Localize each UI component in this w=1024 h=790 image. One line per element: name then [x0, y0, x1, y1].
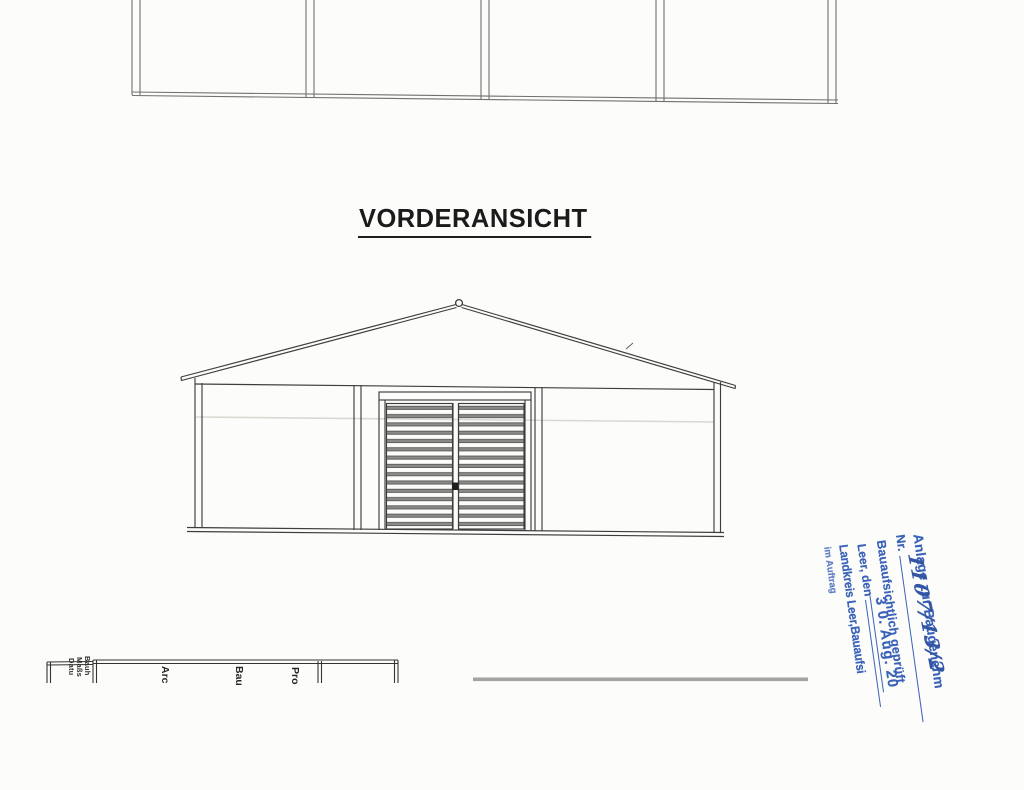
stamp-place-label: Leer, den — [854, 543, 875, 597]
door-group — [379, 392, 531, 530]
titleblock-field-datum: Datu — [67, 658, 76, 675]
roof-tick-mark — [626, 343, 633, 349]
door-handle — [452, 483, 459, 491]
wall-outline — [187, 378, 724, 537]
titleblock-col-architekt: Arc — [159, 666, 171, 684]
door-leaf-right — [459, 404, 525, 530]
top-elevation-drawing — [132, 0, 838, 104]
titleblock-col-pro: Pro — [289, 667, 301, 685]
scanned-drawing-sheet: { "title": { "text": "VORDERANSICHT" }, … — [0, 0, 1024, 683]
roof-outline — [181, 300, 736, 389]
titleblock-field-bauherr: Bauh — [83, 656, 92, 676]
stamp-line-im-auftrag: im Auftrag — [821, 546, 838, 594]
fold-line — [196, 417, 714, 422]
roof-finial — [456, 300, 463, 307]
door-header — [379, 392, 531, 400]
stamp-nr-label: Nr. — [893, 534, 909, 552]
drawing-title: VORDERANSICHT — [358, 203, 592, 238]
titleblock-field-massstab: Maßs — [75, 657, 84, 677]
door-leaf-left — [387, 404, 453, 530]
title-block-frame — [47, 660, 398, 683]
scan-artifact-bar — [473, 678, 808, 682]
approval-stamp: Anlage zur Baugenehm Nr. 1107/13/2 Bauau… — [776, 531, 958, 790]
front-elevation-drawing — [181, 300, 736, 537]
